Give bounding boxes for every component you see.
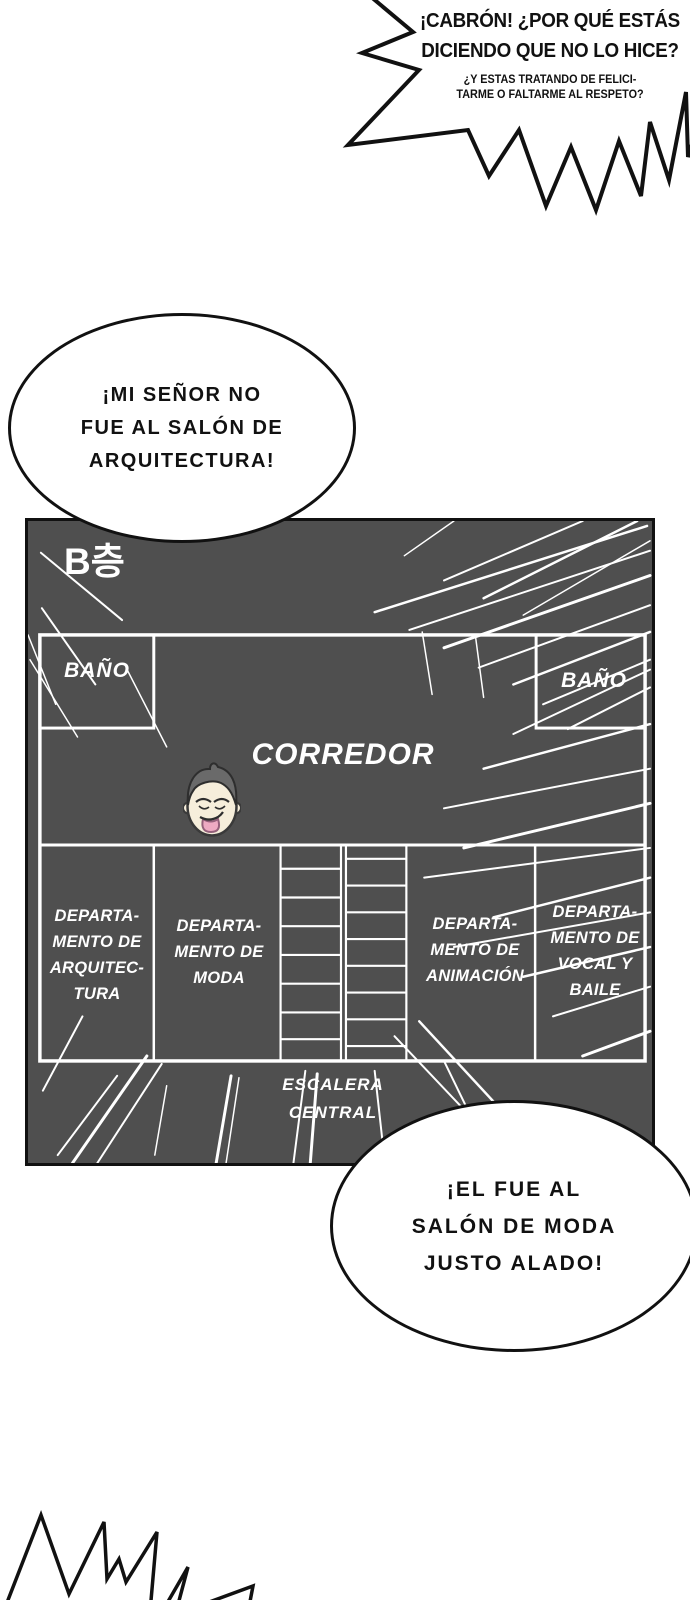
speech-bubble-he-went: ¡EL FUE AL SALÓN DE MODA JUSTO ALADO! <box>330 1100 690 1352</box>
room-label-bathroom-right: BAÑO <box>540 669 648 693</box>
shout-line-1: ¡CABRÓN! ¿POR QUÉ ESTÁS <box>417 6 684 36</box>
label-line: BAILE <box>536 977 654 1003</box>
shout-line-2: DICIENDO QUE NO LO HICE? <box>417 36 684 66</box>
jagged-bubble-bottom-left <box>0 1500 270 1600</box>
bubble-line: ARQUITECTURA! <box>89 445 275 478</box>
jagged-shape-spike <box>162 1567 188 1600</box>
room-label-vocal-dance: DEPARTA- MENTO DE VOCAL Y BAILE <box>536 899 654 1003</box>
shout-spacer <box>408 66 690 73</box>
label-line: DEPARTA- <box>157 913 281 939</box>
tongue-shape <box>202 819 219 832</box>
bubble-line: JUSTO ALADO! <box>424 1245 604 1282</box>
speech-bubble-my-lord: ¡MI SEÑOR NO FUE AL SALÓN DE ARQUITECTUR… <box>8 313 356 543</box>
jagged-shape-main <box>3 1515 157 1600</box>
character-face-icon <box>183 759 241 841</box>
label-line: ANIMACIÓN <box>413 963 537 989</box>
room-label-corridor: CORREDOR <box>250 738 436 772</box>
room-label-architecture: DEPARTA- MENTO DE ARQUITEC- TURA <box>37 903 157 1007</box>
bubble-line: ¡EL FUE AL <box>447 1171 581 1208</box>
label-line: ARQUITEC- <box>37 955 157 981</box>
shout-small-line-1: ¿Y ESTAS TRATANDO DE FELICI- <box>417 73 684 88</box>
label-line: MODA <box>157 965 281 991</box>
room-label-bathroom-left: BAÑO <box>42 659 152 683</box>
speed-lines <box>28 521 650 1163</box>
label-line: MENTO DE <box>536 925 654 951</box>
label-line: VOCAL Y <box>536 951 654 977</box>
stairs-label: ESCALERA CENTRAL <box>253 1071 413 1127</box>
shout-small-line-2: TARME O FALTARME AL RESPETO? <box>417 88 684 103</box>
label-line: DEPARTA- <box>536 899 654 925</box>
room-label-fashion: DEPARTA- MENTO DE MODA <box>157 913 281 991</box>
stairs-steps <box>281 845 407 1061</box>
label-line: MENTO DE <box>37 929 157 955</box>
label-line: DEPARTA- <box>37 903 157 929</box>
label-line: CENTRAL <box>253 1099 413 1127</box>
label-line: MENTO DE <box>413 937 537 963</box>
label-line: ESCALERA <box>253 1071 413 1099</box>
floor-label: B층 <box>64 531 125 585</box>
bubble-line: ¡MI SEÑOR NO <box>102 379 261 412</box>
floorplan-panel: B층 BAÑO BAÑO CORREDOR DEPARTA- MENTO DE … <box>25 518 655 1166</box>
speech-bubble-shout: ¡CABRÓN! ¿POR QUÉ ESTÁS DICIENDO QUE NO … <box>408 6 690 103</box>
label-line: MENTO DE <box>157 939 281 965</box>
label-line: DEPARTA- <box>413 911 537 937</box>
floorplan-drawing <box>28 521 652 1163</box>
jagged-shape-tail <box>182 1586 253 1600</box>
character-head <box>183 763 241 835</box>
bubble-line: SALÓN DE MODA <box>412 1208 617 1245</box>
bubble-line: FUE AL SALÓN DE <box>81 412 284 445</box>
room-label-animation: DEPARTA- MENTO DE ANIMACIÓN <box>413 911 537 989</box>
comic-page: ¡CABRÓN! ¿POR QUÉ ESTÁS DICIENDO QUE NO … <box>0 0 690 1600</box>
label-line: TURA <box>37 981 157 1007</box>
